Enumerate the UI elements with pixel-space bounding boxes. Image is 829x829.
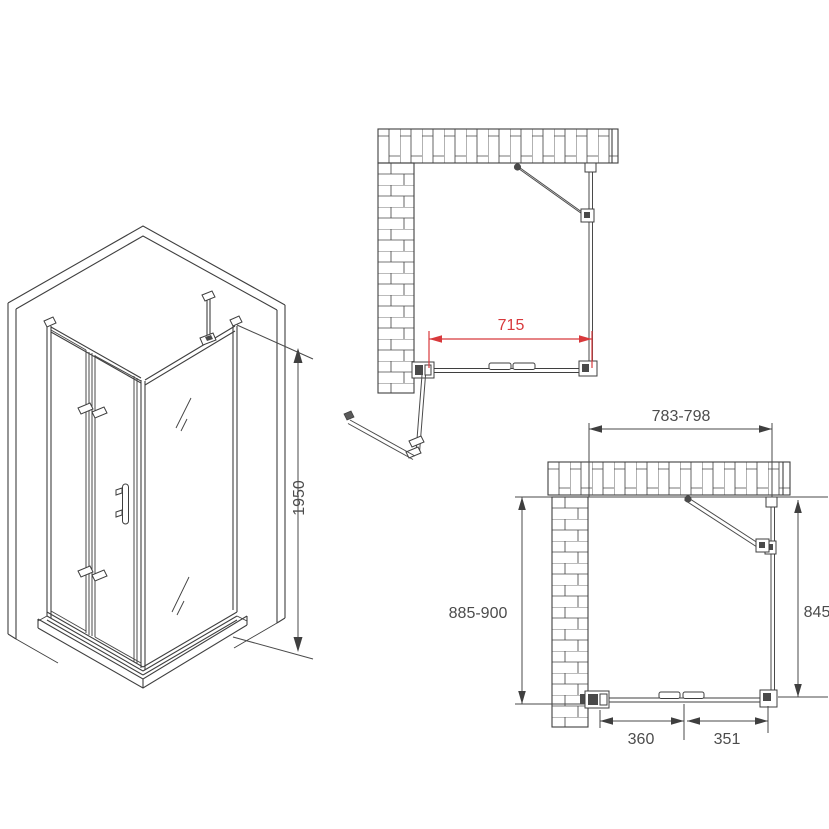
plan-closed-walls — [515, 462, 828, 727]
plan-open-rail-glide-right — [513, 363, 535, 370]
iso-corner-walls — [8, 226, 285, 663]
height-dimension-label: 1950 — [291, 480, 308, 516]
plan-closed-left-wall — [552, 497, 588, 727]
plan-closed-rail-glide-right — [683, 692, 704, 699]
plan-view-closed: 783-798 885-900 845 360 — [449, 408, 829, 748]
closed-bottom-left-label: 360 — [628, 731, 655, 748]
technical-drawing-canvas: 1950 — [0, 0, 829, 829]
plan-open-fixed-panel — [585, 163, 596, 368]
plan-open-top-wall — [378, 129, 618, 163]
plan-closed-fixed-panel — [765, 497, 777, 697]
plan-open-door-endcap — [344, 411, 354, 420]
plan-open-walls — [378, 129, 618, 393]
closed-top-width-label: 783-798 — [652, 408, 711, 425]
plan-closed-corner-bracket — [760, 690, 777, 707]
plan-closed-bottom-right-dimension: 351 — [687, 706, 768, 748]
iso-glass-reflections — [172, 398, 191, 615]
plan-open-left-wall — [378, 163, 414, 393]
plan-closed-bottom-left-dimension: 360 — [600, 704, 684, 748]
iso-height-dimension: 1950 — [233, 325, 313, 659]
iso-bifold-door — [51, 330, 141, 663]
plan-closed-right-height-dimension: 845 — [778, 500, 829, 697]
iso-view: 1950 — [8, 226, 313, 688]
plan-closed-rail-glide-left — [659, 692, 680, 699]
plan-open-support-bar — [514, 163, 594, 222]
closed-right-height-label: 845 — [804, 604, 829, 621]
open-width-dimension-label: 715 — [498, 317, 525, 334]
iso-frame — [44, 316, 242, 670]
plan-closed-support-bar — [684, 495, 769, 552]
plan-open-wall-bracket — [412, 362, 434, 378]
plan-open-rail-glide-left — [489, 363, 511, 370]
iso-shower-tray — [38, 612, 247, 688]
iso-support-bar — [200, 291, 216, 345]
plan-open-width-dimension: 715 — [429, 317, 592, 368]
plan-open-bottom-rail — [412, 361, 597, 378]
closed-left-height-label: 885-900 — [449, 605, 508, 622]
plan-closed-bottom-rail — [580, 690, 777, 708]
plan-closed-top-wall — [548, 462, 790, 495]
closed-bottom-right-label: 351 — [714, 731, 741, 748]
iso-door-handle — [116, 484, 129, 524]
shower-enclosure-diagram: 1950 — [0, 0, 829, 829]
plan-open-corner-bracket — [579, 361, 597, 376]
plan-view-open: 715 — [344, 129, 618, 460]
